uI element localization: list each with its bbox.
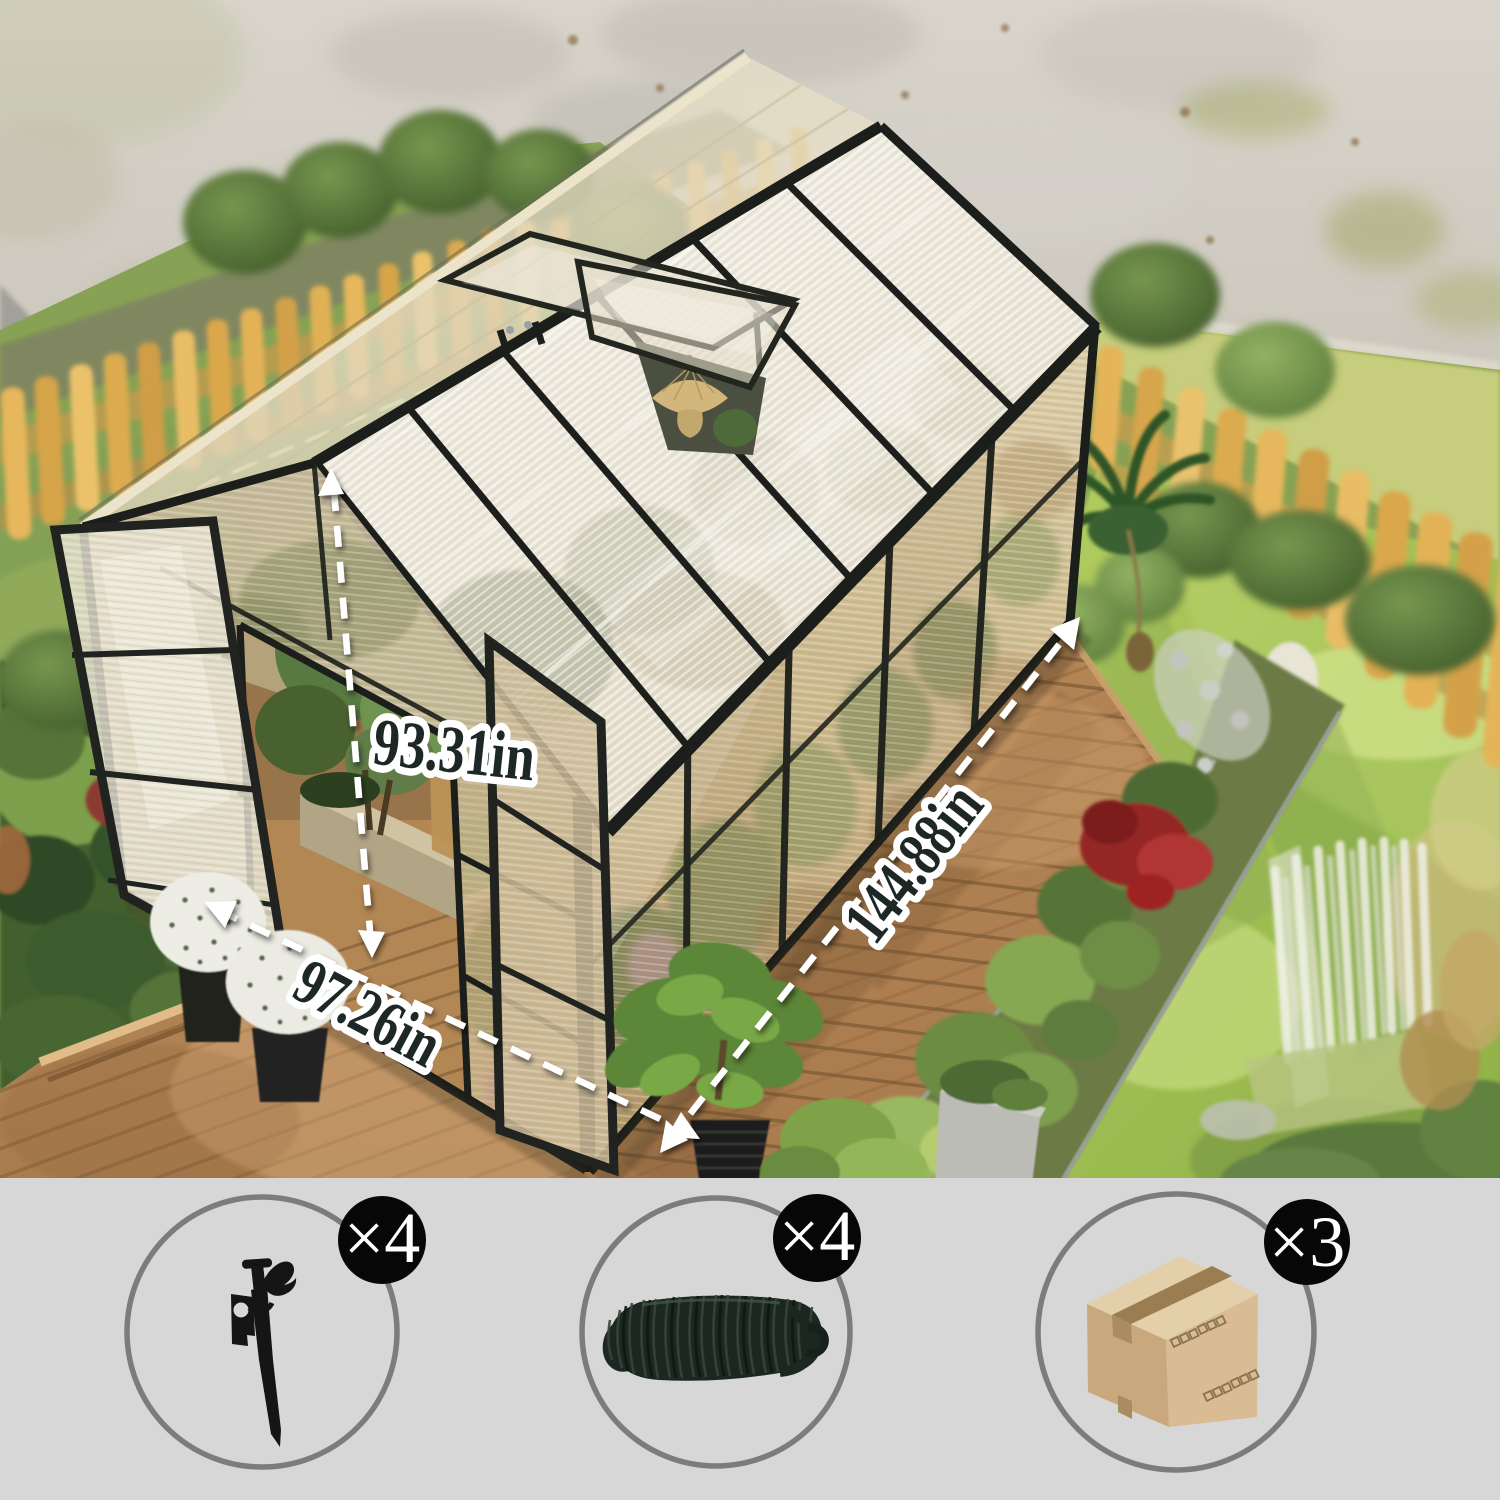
- svg-text:×3: ×3: [1269, 1202, 1346, 1282]
- svg-text:×4: ×4: [344, 1198, 421, 1278]
- svg-text:×4: ×4: [779, 1196, 856, 1276]
